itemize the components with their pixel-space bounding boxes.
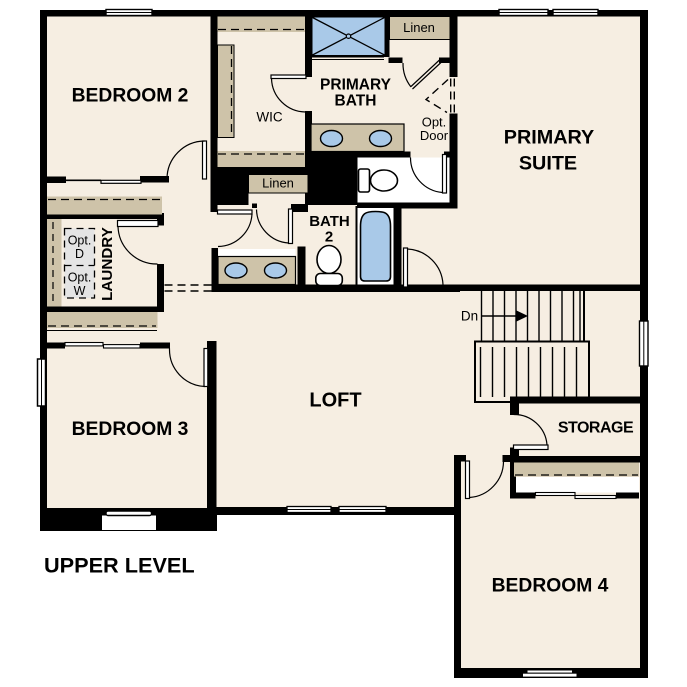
svg-text:Linen: Linen [403, 20, 435, 35]
svg-text:BATH: BATH [309, 213, 350, 230]
svg-text:STORAGE: STORAGE [558, 420, 634, 437]
svg-text:Door: Door [420, 128, 449, 143]
svg-text:BEDROOM 4: BEDROOM 4 [492, 576, 609, 597]
svg-text:Dn: Dn [461, 309, 478, 324]
svg-text:Opt.: Opt. [68, 271, 92, 285]
svg-text:W: W [74, 284, 86, 298]
svg-text:WIC: WIC [256, 110, 282, 125]
svg-text:BEDROOM 3: BEDROOM 3 [72, 419, 189, 440]
svg-text:PRIMARY: PRIMARY [504, 127, 594, 149]
svg-text:LAUNDRY: LAUNDRY [99, 227, 116, 301]
svg-text:2: 2 [325, 229, 333, 246]
svg-text:PRIMARY: PRIMARY [320, 77, 392, 94]
svg-text:BEDROOM 2: BEDROOM 2 [72, 86, 189, 107]
svg-text:LOFT: LOFT [309, 390, 361, 412]
svg-text:Opt.: Opt. [68, 234, 92, 248]
svg-text:D: D [75, 247, 84, 261]
svg-text:BATH: BATH [335, 93, 377, 110]
svg-text:SUITE: SUITE [519, 153, 577, 175]
svg-text:Linen: Linen [262, 176, 294, 191]
svg-text:UPPER LEVEL: UPPER LEVEL [44, 553, 195, 578]
